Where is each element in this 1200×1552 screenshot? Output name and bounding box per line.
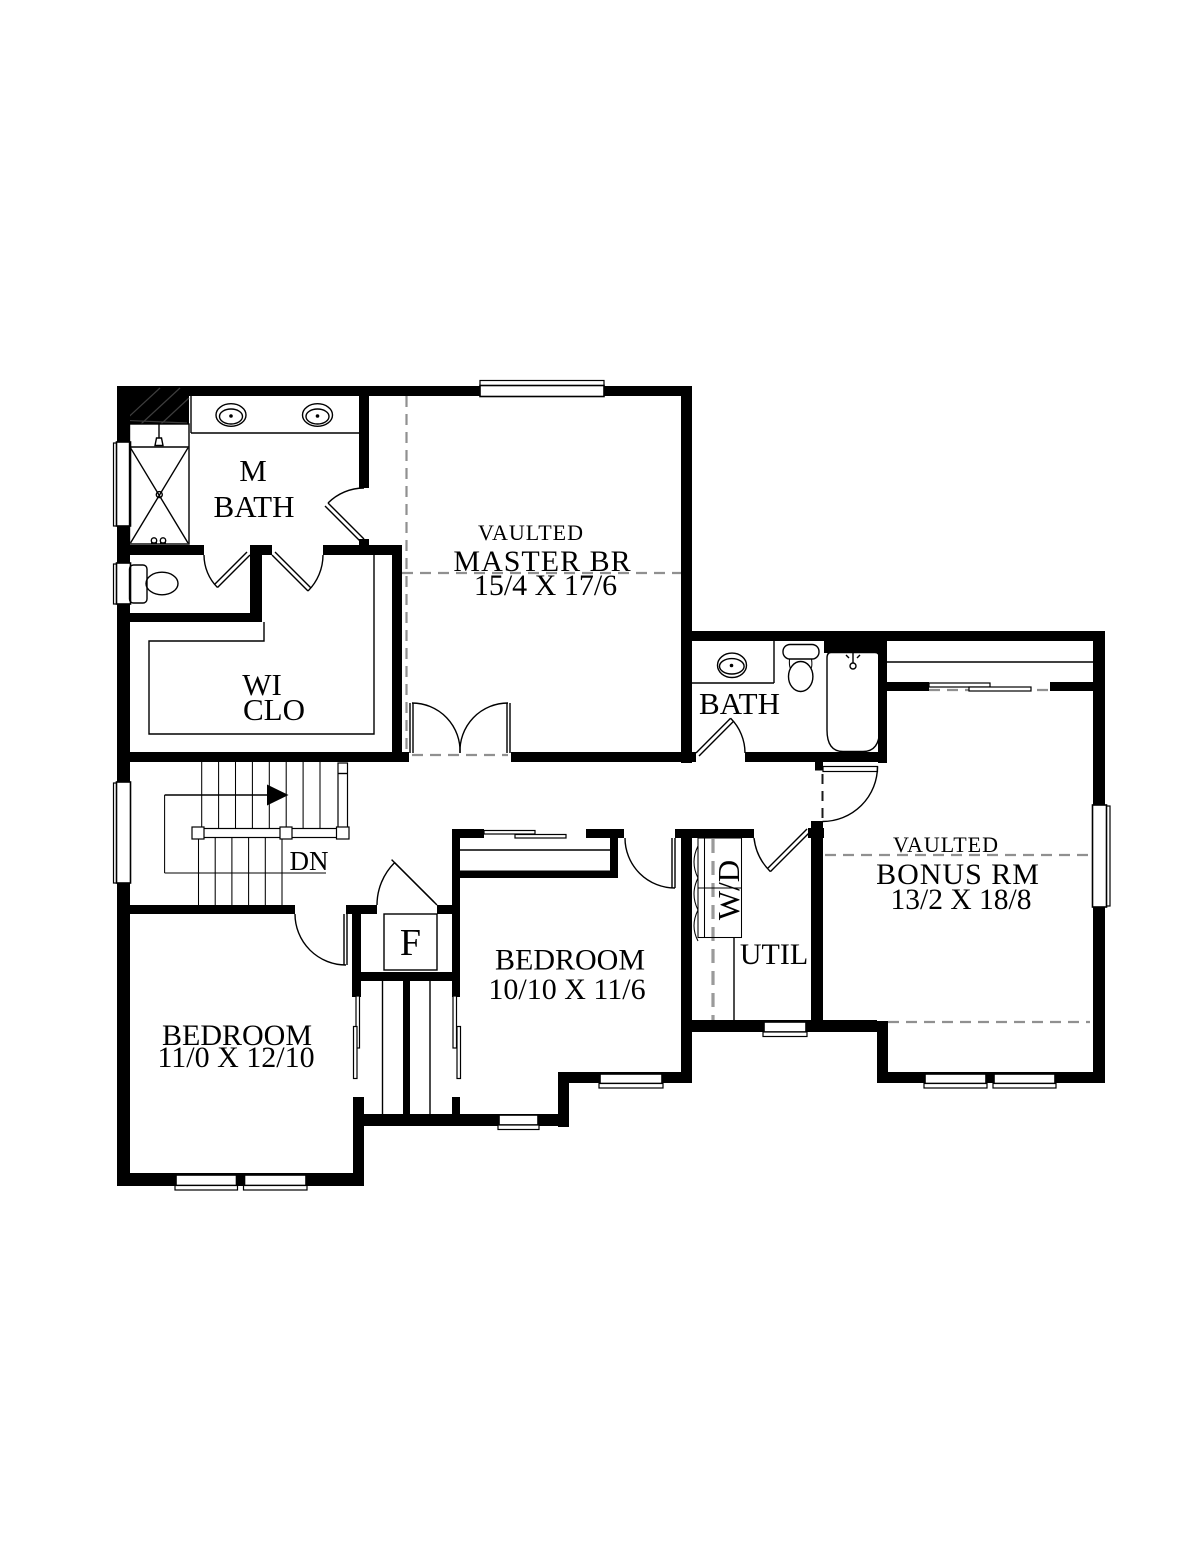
svg-text:W/D: W/D [711,860,746,920]
svg-text:13/2 X 18/8: 13/2 X 18/8 [891,884,1032,916]
svg-text:BEDROOM: BEDROOM [495,944,645,977]
svg-text:BATH: BATH [699,686,780,721]
svg-text:VAULTED: VAULTED [478,520,584,545]
svg-text:CLO: CLO [243,692,305,727]
svg-text:10/10 X 11/6: 10/10 X 11/6 [488,973,645,1006]
svg-text:UTIL: UTIL [740,938,808,971]
svg-text:F: F [400,922,421,964]
svg-text:15/4 X 17/6: 15/4 X 17/6 [474,569,617,602]
svg-text:BATH: BATH [214,489,295,524]
svg-text:11/0 X 12/10: 11/0 X 12/10 [157,1041,314,1074]
svg-text:DN: DN [290,846,329,876]
svg-text:M: M [239,453,267,488]
svg-text:VAULTED: VAULTED [893,832,999,857]
